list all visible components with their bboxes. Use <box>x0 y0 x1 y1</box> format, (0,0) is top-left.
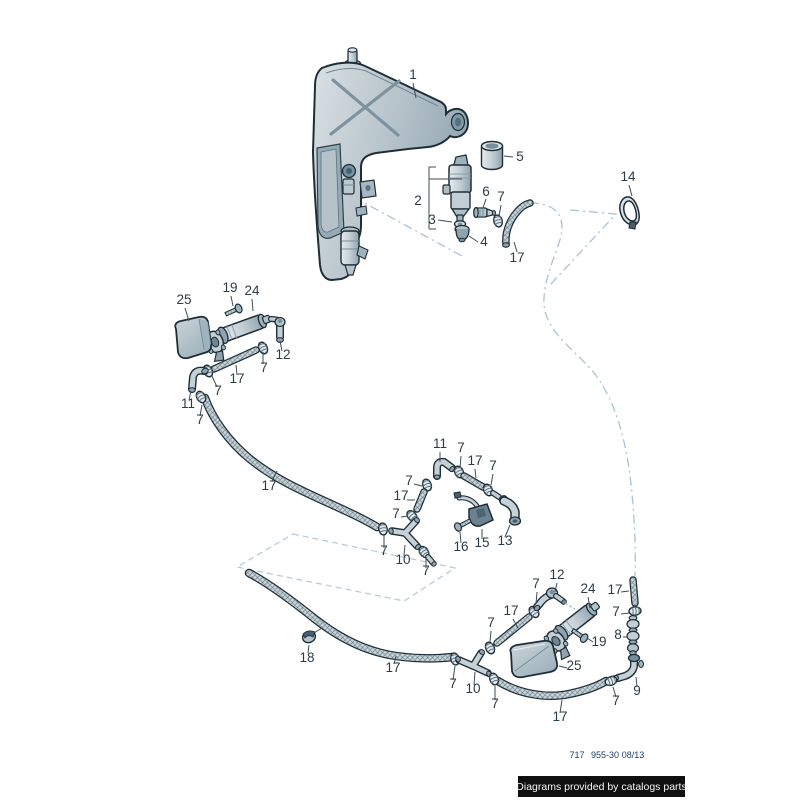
elbow-connector-12b <box>533 588 567 612</box>
label-25: 25 <box>176 292 191 307</box>
label-17: 17 <box>261 478 276 493</box>
hose-clamp <box>629 606 642 616</box>
label-7: 7 <box>380 543 388 558</box>
ribbed-connector-8 <box>627 616 639 656</box>
right-nozzle-assembly <box>497 588 603 677</box>
hose-clamp <box>378 522 389 535</box>
hose-17-vertical <box>633 580 635 603</box>
label-17: 17 <box>552 709 567 724</box>
nozzle-screw-right <box>570 626 589 643</box>
label-2: 2 <box>414 193 422 208</box>
label-13: 13 <box>497 533 512 548</box>
hose-17-diagonal <box>497 617 529 643</box>
label-7: 7 <box>489 458 497 473</box>
label-7: 7 <box>405 473 413 488</box>
label-19: 19 <box>591 634 606 649</box>
label-17: 17 <box>229 371 244 386</box>
hose-clamp <box>492 214 504 228</box>
diagram-footer-code: 717 955-30 08/13 <box>569 750 644 760</box>
label-4: 4 <box>480 234 488 249</box>
right-hose-run <box>498 681 606 696</box>
label-7: 7 <box>457 440 465 455</box>
label-5: 5 <box>516 149 524 164</box>
label-6: 6 <box>482 184 490 199</box>
assembly-guide-lines <box>237 188 635 601</box>
footer-catalog-number: 717 <box>569 750 584 760</box>
label-18: 18 <box>299 650 314 665</box>
label-1: 1 <box>409 67 417 82</box>
nozzle-cover-right <box>510 641 557 678</box>
elbow-connector-11b <box>434 462 455 479</box>
label-7: 7 <box>487 615 495 630</box>
label-14: 14 <box>620 169 636 184</box>
watermark-badge: Diagrams provided by catalogs parts <box>516 776 686 797</box>
installed-pump <box>341 231 359 265</box>
label-11: 11 <box>181 396 195 411</box>
label-17: 17 <box>509 250 524 265</box>
label-24: 24 <box>580 581 596 596</box>
label-7: 7 <box>497 189 505 204</box>
headlight-washer-nozzle <box>216 310 273 345</box>
label-7: 7 <box>532 576 540 591</box>
label-10: 10 <box>465 681 480 696</box>
left-nozzle-assembly <box>175 303 285 404</box>
nozzle-pipe-15 <box>454 492 493 526</box>
label-12: 12 <box>549 567 564 582</box>
footer-date: 08/13 <box>622 750 645 760</box>
nozzle-cover-left <box>175 317 211 359</box>
label-25: 25 <box>566 658 581 673</box>
label-8: 8 <box>614 627 622 642</box>
label-12: 12 <box>275 347 290 362</box>
bracket-screw-16 <box>453 517 472 533</box>
label-10: 10 <box>395 552 410 567</box>
label-17: 17 <box>503 603 518 618</box>
elbow-connector-11 <box>189 367 209 392</box>
label-11: 11 <box>433 436 447 451</box>
pump-outlet-hose <box>503 203 530 247</box>
label-19: 19 <box>222 280 237 295</box>
nozzle-screw <box>224 303 243 318</box>
hose-retaining-clip <box>301 628 322 644</box>
label-15: 15 <box>474 535 489 550</box>
label-7: 7 <box>491 696 499 711</box>
main-hose-lower <box>249 573 452 658</box>
footer-part-group: 955-30 <box>591 750 619 760</box>
label-7: 7 <box>612 604 620 619</box>
label-7: 7 <box>260 360 268 375</box>
main-hose-upper <box>205 398 377 527</box>
label-3: 3 <box>428 212 436 227</box>
parts-diagram-page: 1 2 3 4 5 6 7 17 14 25 19 24 12 7 17 7 1… <box>0 0 800 800</box>
elbow-connector-12 <box>271 318 285 343</box>
t-connector-10-bottom <box>455 649 492 678</box>
label-7: 7 <box>422 563 430 578</box>
washer-system-diagram: 1 2 3 4 5 6 7 17 14 25 19 24 12 7 17 7 1… <box>0 0 800 800</box>
watermark-text: Diagrams provided by catalogs parts <box>516 781 686 793</box>
label-7: 7 <box>214 383 222 398</box>
label-17: 17 <box>385 660 400 675</box>
label-17: 17 <box>393 488 408 503</box>
label-24: 24 <box>244 283 260 298</box>
label-9: 9 <box>633 683 641 698</box>
hose-17-mid-b <box>417 492 424 509</box>
cable-tie-loop <box>620 197 639 229</box>
label-7: 7 <box>612 693 620 708</box>
washer-reservoir <box>313 48 468 280</box>
label-17: 17 <box>467 453 482 468</box>
label-16: 16 <box>453 539 468 554</box>
label-7: 7 <box>449 676 457 691</box>
hose-17-mid-a <box>464 476 483 487</box>
label-7: 7 <box>196 412 204 427</box>
elbow-connector-13 <box>498 494 520 525</box>
label-17: 17 <box>607 582 622 597</box>
label-7: 7 <box>392 506 400 521</box>
